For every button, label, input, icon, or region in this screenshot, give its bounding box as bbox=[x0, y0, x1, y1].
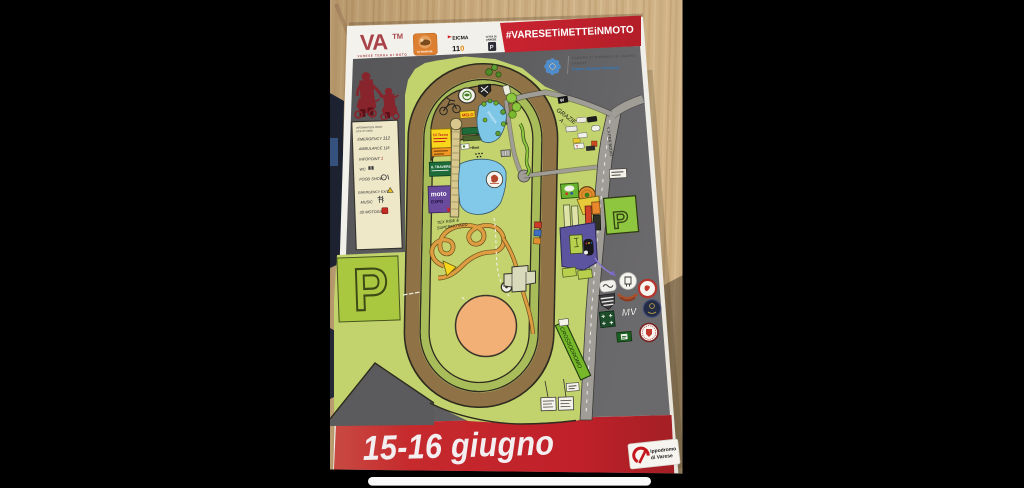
svg-text:MV: MV bbox=[621, 306, 638, 319]
svg-text:UTILITY INFO: UTILITY INFO bbox=[356, 129, 373, 134]
svg-text:EICMA: EICMA bbox=[452, 35, 469, 42]
svg-text:11: 11 bbox=[452, 44, 460, 53]
svg-text:la fonderia: la fonderia bbox=[417, 49, 433, 54]
svg-text:EXPO: EXPO bbox=[431, 199, 444, 204]
svg-text:MUSIC: MUSIC bbox=[361, 200, 374, 204]
svg-text:0: 0 bbox=[460, 44, 464, 53]
svg-text:IL TRAVERSO: IL TRAVERSO bbox=[431, 165, 454, 170]
svg-text:+Beat: +Beat bbox=[470, 145, 480, 150]
svg-text:Di Tecno: Di Tecno bbox=[433, 133, 449, 138]
svg-text:VARESE: VARESE bbox=[572, 61, 587, 66]
svg-text:15-16 giugno: 15-16 giugno bbox=[362, 424, 555, 468]
svg-text:MELO: MELO bbox=[462, 112, 474, 118]
svg-text:VARESE: VARESE bbox=[486, 37, 497, 41]
svg-text:VA: VA bbox=[360, 29, 389, 55]
svg-text:TM: TM bbox=[392, 32, 403, 41]
svg-text:FOOD SHOW: FOOD SHOW bbox=[359, 177, 383, 182]
svg-text:P: P bbox=[352, 255, 390, 323]
svg-text:moto: moto bbox=[431, 191, 447, 199]
svg-text:P: P bbox=[490, 45, 494, 51]
svg-text:WC: WC bbox=[359, 167, 366, 171]
svg-text:INFOPOINT 1: INFOPOINT 1 bbox=[359, 156, 384, 162]
svg-text:P: P bbox=[611, 206, 629, 234]
